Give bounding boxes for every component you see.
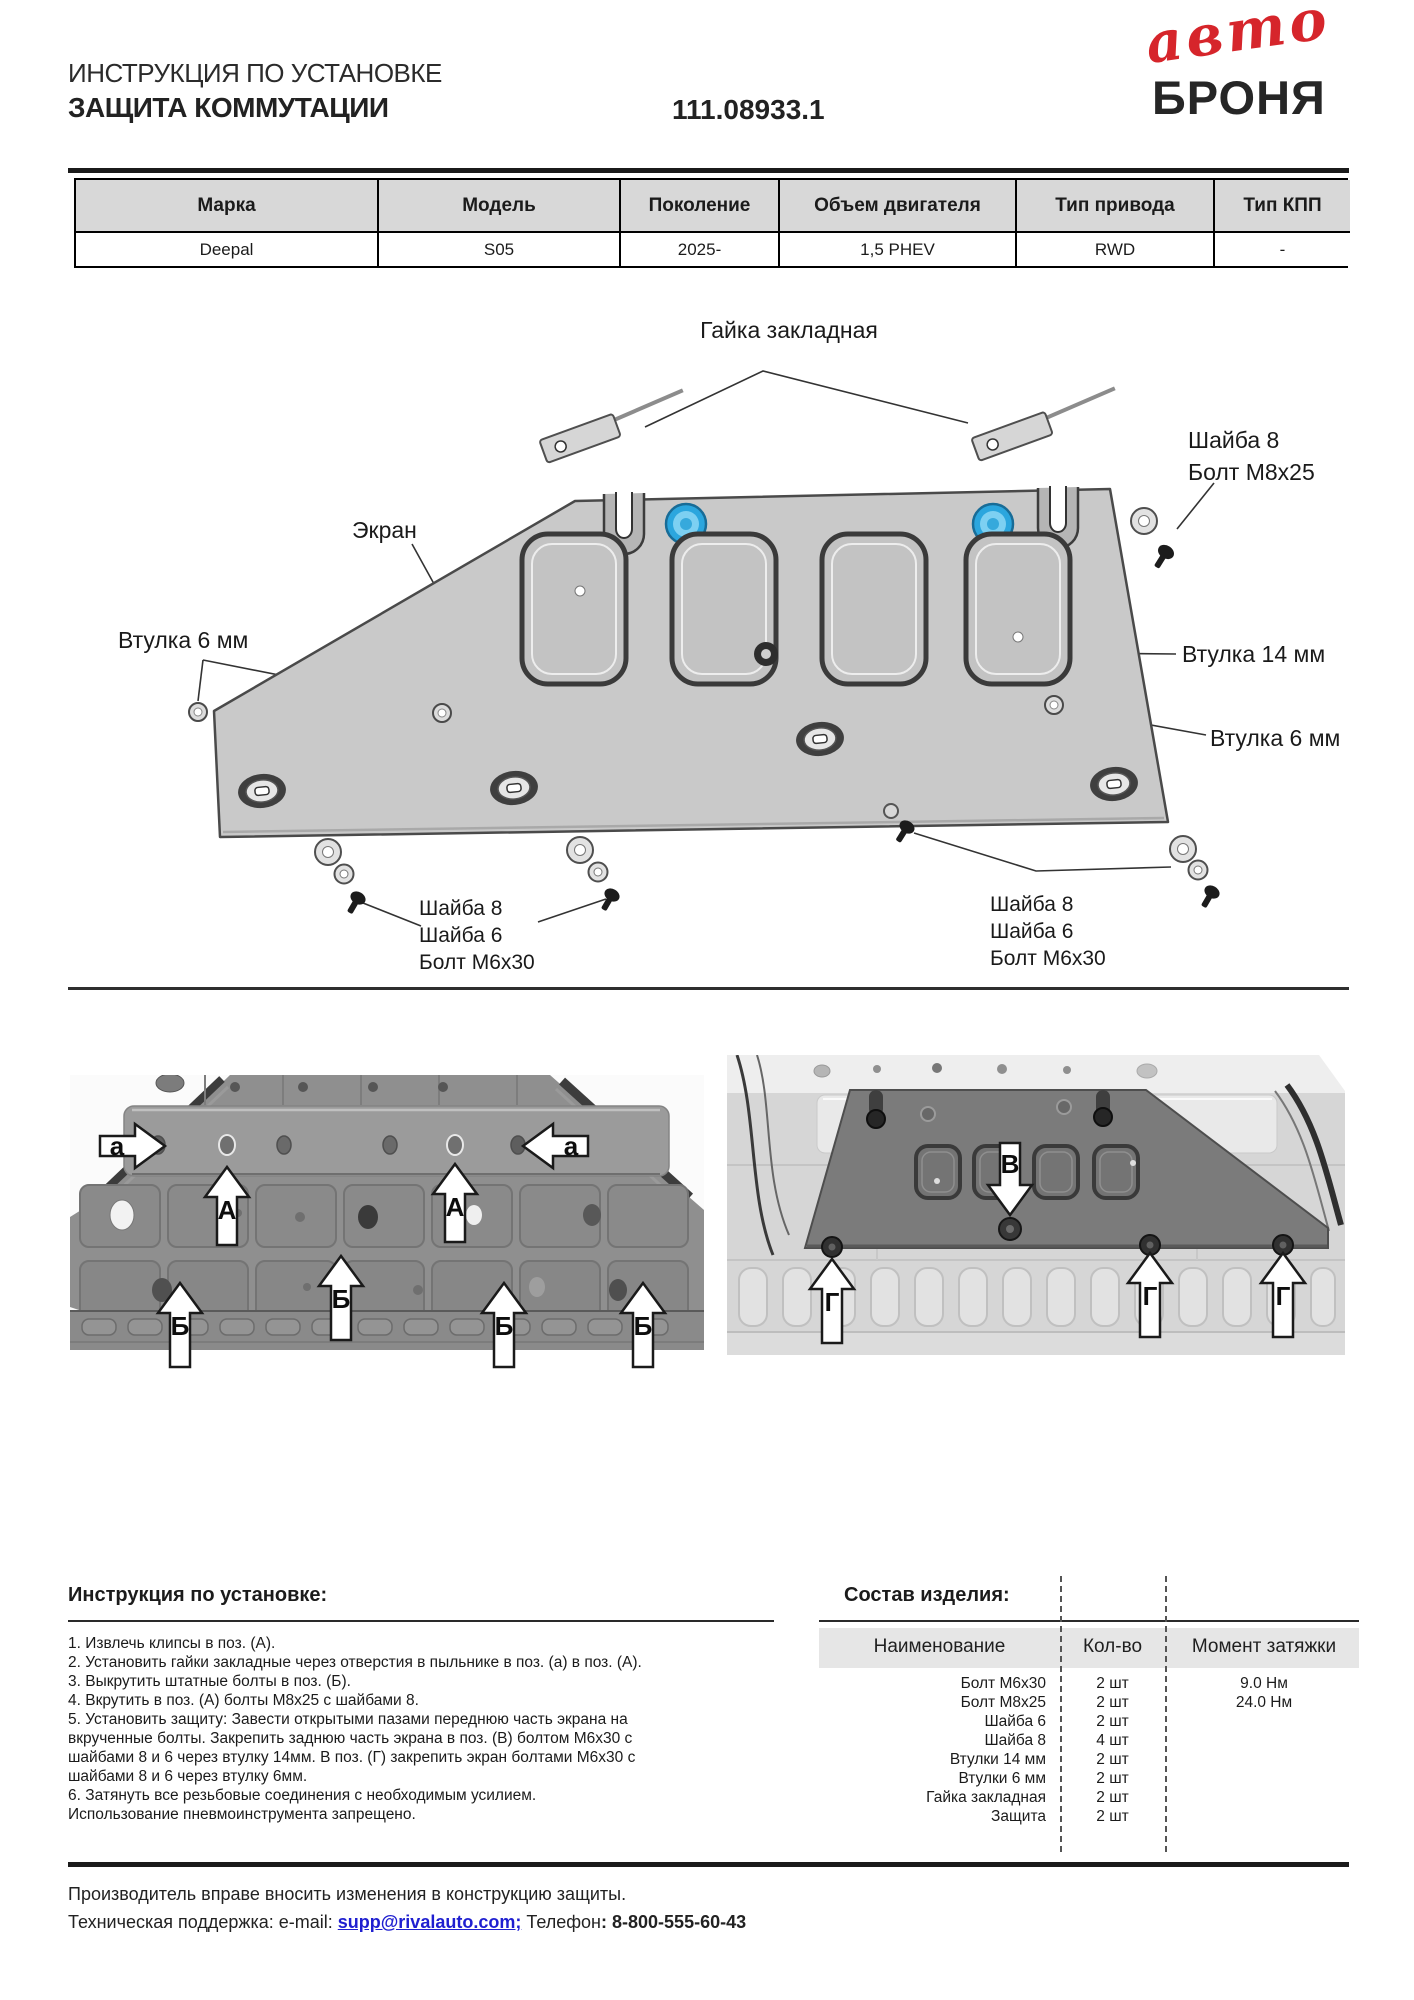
logo-stencil-text: БРОНЯ [1152,74,1326,121]
vehicle-spec-table: Марка Модель Поколение Объем двигателя Т… [74,178,1348,268]
spec-value-gearbox: - [1215,233,1350,266]
part-torque: 24.0 Нм [1165,1693,1363,1712]
parts-qty-column: 2 шт 2 шт 2 шт 4 шт 2 шт 2 шт 2 шт 2 шт [1060,1674,1165,1826]
parts-names-column: Болт М6х30 Болт М8х25 Шайба 6 Шайба 8 Вт… [819,1674,1046,1826]
marker-a-right: а [564,1131,579,1161]
instruction-line: вкрученные болты. Закрепить заднюю часть… [68,1729,788,1748]
marker-G-2: Г [1143,1281,1158,1311]
instruction-document: ИНСТРУКЦИЯ ПО УСТАНОВКЕ ЗАЩИТА КОММУТАЦИ… [0,0,1414,2000]
part-number: 111.08933.1 [672,94,825,126]
label-screen: Экран [352,517,417,543]
marker-G-3: Г [1276,1281,1291,1311]
bushing-14-hole [754,642,778,666]
washer8-bolt-m8x25-part [1131,508,1177,572]
parts-header-torque: Момент затяжки [1165,1636,1363,1658]
label-nut-plate: Гайка закладная [700,317,878,343]
part-qty: 2 шт [1060,1712,1165,1731]
footer-divider [68,1862,1349,1867]
part-name: Болт М8х25 [819,1693,1046,1712]
part-qty: 4 шт [1060,1731,1165,1750]
part-name: Шайба 8 [819,1731,1046,1750]
instruction-line: 6. Затянуть все резьбовые соединения с н… [68,1786,788,1805]
spec-header-engine: Объем двигателя [780,180,1017,233]
instruction-line: шайбами 8 и 6 через втулку 6мм. [68,1767,788,1786]
label-bush14: Втулка 14 мм [1182,641,1325,667]
part-qty: 2 шт [1060,1769,1165,1788]
instruction-line: 2. Установить гайки закладные через отве… [68,1653,788,1672]
marker-B-1: Б [171,1311,190,1341]
parts-title: Состав изделия: [844,1584,1010,1607]
label-bl-washer6: Шайба 6 [419,924,502,947]
instructions-title: Инструкция по установке: [68,1584,327,1607]
part-name: Шайба 6 [819,1712,1046,1731]
part-name: Втулки 6 мм [819,1769,1046,1788]
label-bush6-right: Втулка 6 мм [1210,725,1340,751]
spec-header-drive: Тип привода [1017,180,1215,233]
support-phone: : 8-800-555-60-43 [601,1912,746,1932]
instruction-line: Использование пневмоинструмента запрещен… [68,1805,788,1824]
instruction-line: 1. Извлечь клипсы в поз. (А). [68,1634,788,1653]
spec-value-model: S05 [379,233,621,266]
support-line: Техническая поддержка: e-mail: supp@riva… [68,1912,746,1933]
product-title: ЗАЩИТА КОММУТАЦИИ [68,92,388,124]
label-br-washer8: Шайба 8 [990,893,1073,916]
spec-value-drive: RWD [1017,233,1215,266]
marker-A-2: А [446,1192,465,1222]
spec-value-marka: Deepal [76,233,379,266]
manufacturer-note: Производитель вправе вносить изменения в… [68,1884,626,1905]
exploded-diagram: Гайка закладная Шайба 8 Болт М8х25 Экран… [0,280,1414,990]
instructions-underline [68,1620,774,1622]
label-bush6-left: Втулка 6 мм [118,627,248,653]
spec-value-engine: 1,5 PHEV [780,233,1017,266]
spec-header-gearbox: Тип КПП [1215,180,1350,233]
nut-plate-left-part [539,388,690,463]
instructions-list: 1. Извлечь клипсы в поз. (А). 2. Установ… [68,1634,788,1824]
instruction-line: 3. Выкрутить штатные болты в поз. (Б). [68,1672,788,1691]
parts-top-rule [819,1620,1359,1622]
part-qty: 2 шт [1060,1693,1165,1712]
marker-B-3: Б [495,1311,514,1341]
marker-A-1: А [218,1195,237,1225]
part-qty: 2 шт [1060,1674,1165,1693]
support-prefix: Техническая поддержка: e-mail: [68,1912,338,1932]
part-qty: 2 шт [1060,1807,1165,1826]
label-br-washer6: Шайба 6 [990,920,1073,943]
part-name: Гайка закладная [819,1788,1046,1807]
part-qty: 2 шт [1060,1750,1165,1769]
small-hole [575,586,585,596]
label-bolt-m8x25: Болт М8х25 [1188,459,1315,485]
parts-header-qty: Кол-во [1060,1636,1165,1658]
part-name: Втулки 14 мм [819,1750,1046,1769]
part-name: Защита [819,1807,1046,1826]
parts-dashed-divider-2 [1165,1576,1167,1852]
logo-script-text: авто [1142,0,1334,72]
part-qty: 2 шт [1060,1788,1165,1807]
header-divider [68,168,1349,173]
marker-G-1: Г [825,1287,840,1317]
marker-B-2: Б [332,1284,351,1314]
instruction-line: шайбами 8 и 6 через втулку 14мм. В поз. … [68,1748,788,1767]
doc-type-title: ИНСТРУКЦИЯ ПО УСТАНОВКЕ [68,58,442,89]
parts-header-name: Наименование [819,1636,1060,1658]
part-torque: 9.0 Нм [1165,1674,1363,1693]
phone-label: Телефон [521,1912,601,1932]
label-bl-bolt-m6x30: Болт М6х30 [419,951,535,974]
label-bl-washer8: Шайба 8 [419,897,502,920]
label-washer8-top: Шайба 8 [1188,427,1279,453]
washer-bolt-group-left1 [315,839,368,917]
spec-header-model: Модель [379,180,621,233]
label-br-bolt-m6x30: Болт М6х30 [990,947,1106,970]
part-name: Болт М6х30 [819,1674,1046,1693]
parts-torque-column: 9.0 Нм 24.0 Нм [1165,1674,1363,1712]
nut-plate-right-part [971,386,1122,461]
photo-underbody-before: а а А А Б Б Б Б [70,1075,704,1375]
marker-B-4: Б [634,1311,653,1341]
washer-bolt-group-right [1170,836,1222,911]
marker-a-left: а [110,1131,125,1161]
spec-value-generation: 2025- [621,233,780,266]
instruction-line: 4. Вкрутить в поз. (А) болты М8х25 с шай… [68,1691,788,1710]
section-divider [68,987,1349,990]
spec-header-generation: Поколение [621,180,780,233]
spec-header-marka: Марка [76,180,379,233]
marker-V: В [1001,1149,1020,1179]
small-hole [1013,632,1023,642]
instruction-line: 5. Установить защиту: Завести открытыми … [68,1710,788,1729]
photo-shield-installed: В Г Г Г [727,1055,1345,1365]
support-email-link[interactable]: supp@rivalauto.com; [338,1912,522,1932]
